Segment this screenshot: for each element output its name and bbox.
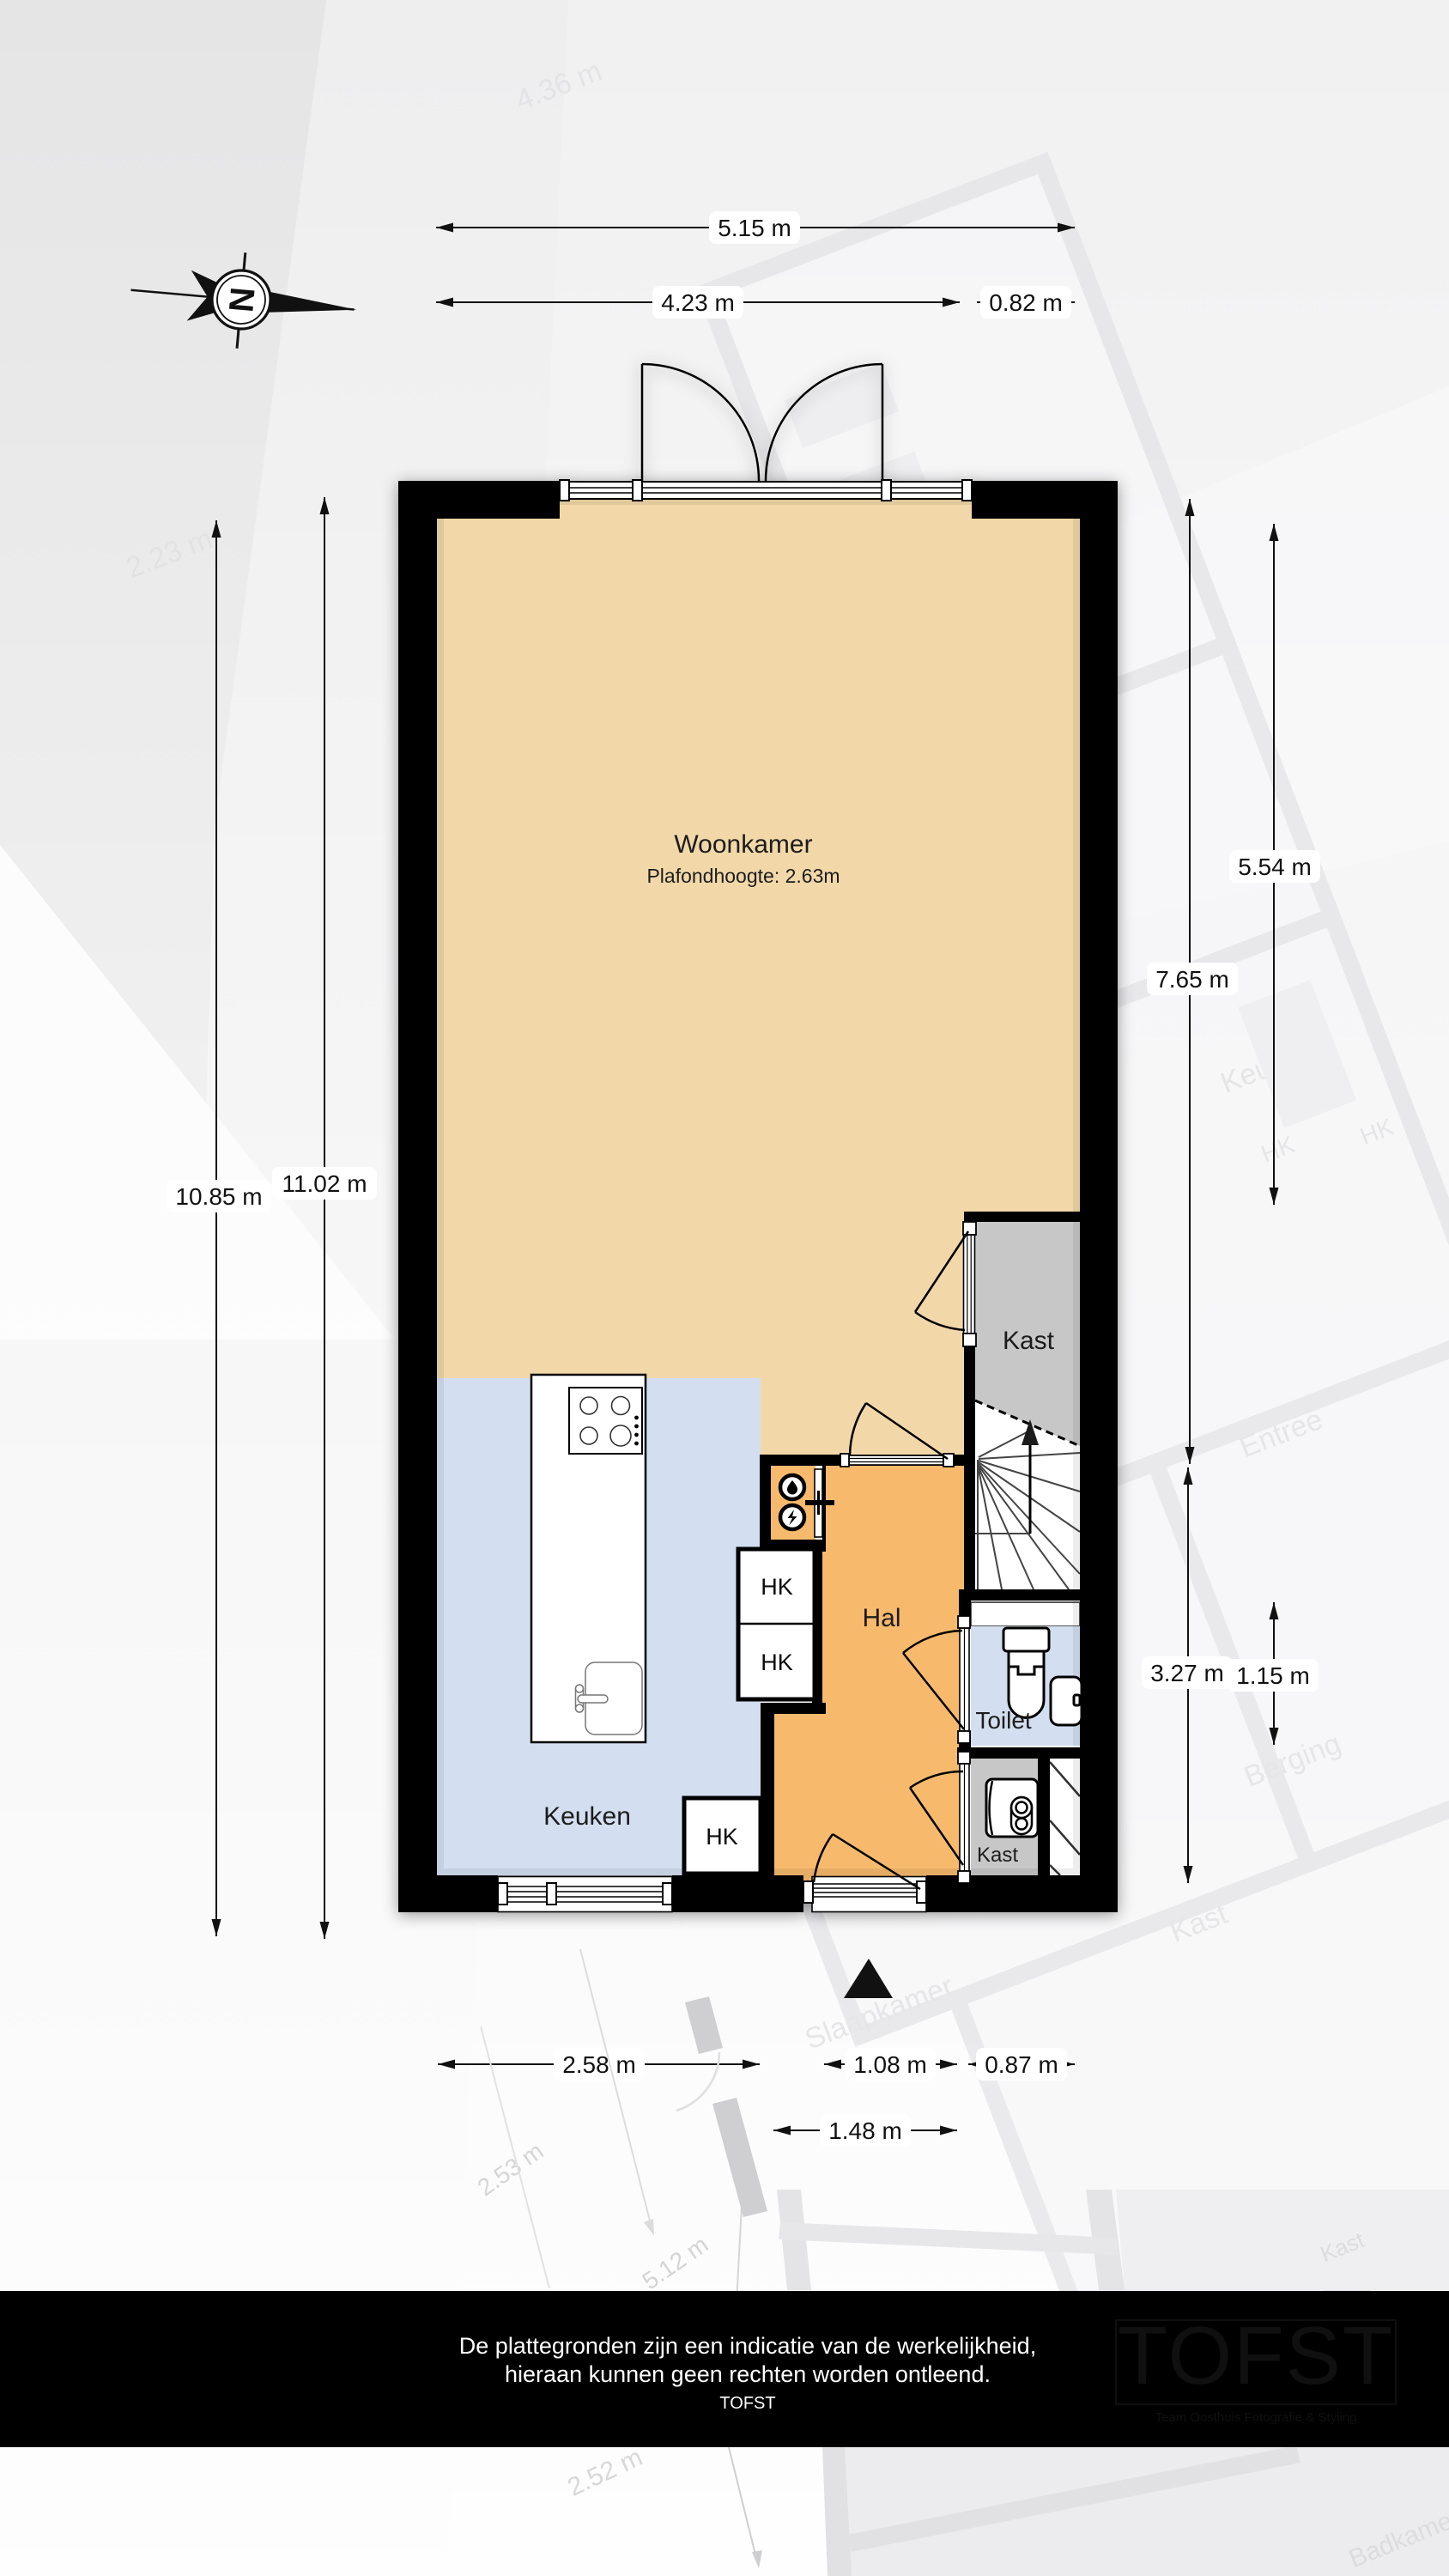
svg-text:N: N: [221, 286, 261, 314]
svg-text:1.08 m: 1.08 m: [853, 2051, 927, 2078]
svg-text:1.15 m: 1.15 m: [1236, 1662, 1310, 1689]
svg-text:Keuken: Keuken: [543, 1802, 631, 1831]
svg-text:11.02 m: 11.02 m: [282, 1170, 367, 1197]
svg-text:0.82 m: 0.82 m: [989, 289, 1063, 316]
svg-text:Kast: Kast: [977, 1844, 1018, 1867]
svg-text:1.48 m: 1.48 m: [828, 2117, 902, 2144]
svg-text:3.27 m: 3.27 m: [1150, 1660, 1224, 1686]
svg-text:Toilet: Toilet: [975, 1707, 1032, 1734]
svg-text:HK: HK: [761, 1649, 793, 1675]
svg-text:5.15 m: 5.15 m: [718, 215, 791, 241]
svg-text:TOFST: TOFST: [719, 2394, 775, 2413]
svg-text:10.85 m: 10.85 m: [175, 1183, 262, 1210]
svg-text:TOFST: TOFST: [1118, 2310, 1395, 2402]
svg-text:Woonkamer: Woonkamer: [674, 830, 812, 859]
svg-text:Hal: Hal: [862, 1604, 900, 1632]
svg-text:Plafondhoogte: 2.63m: Plafondhoogte: 2.63m: [646, 865, 840, 887]
svg-text:5.54 m: 5.54 m: [1238, 854, 1312, 880]
svg-text:4.23 m: 4.23 m: [661, 289, 735, 316]
svg-text:Team Oosthuis Fotografie & Sty: Team Oosthuis Fotografie & Styling: [1155, 2410, 1356, 2425]
svg-text:2.58 m: 2.58 m: [562, 2051, 636, 2078]
svg-text:HK: HK: [706, 1824, 738, 1850]
svg-text:0.87 m: 0.87 m: [985, 2051, 1058, 2078]
svg-text:HK: HK: [761, 1574, 793, 1600]
svg-text:Kast: Kast: [1003, 1327, 1055, 1355]
svg-text:7.65 m: 7.65 m: [1155, 966, 1229, 993]
svg-text:hieraan kunnen geen rechten wo: hieraan kunnen geen rechten worden ontle…: [505, 2361, 991, 2387]
svg-text:De plattegronden zijn een indi: De plattegronden zijn een indicatie van …: [459, 2333, 1036, 2359]
